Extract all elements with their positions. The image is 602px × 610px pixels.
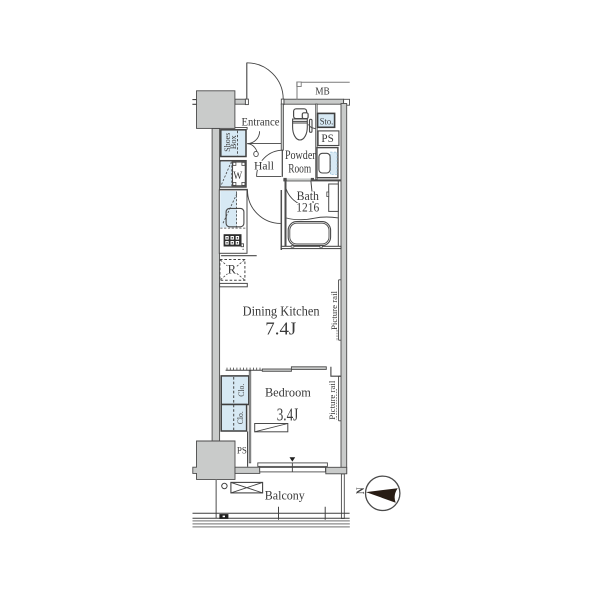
svg-text:Balcony: Balcony [265,489,306,503]
svg-text:Dining Kitchen: Dining Kitchen [243,304,320,319]
svg-text:3.4J: 3.4J [277,404,299,424]
svg-text:Clo.: Clo. [235,411,245,424]
svg-text:Box: Box [229,135,238,149]
svg-text:N: N [355,487,367,494]
svg-text:MB: MB [315,87,330,98]
svg-text:Entrance: Entrance [242,115,280,129]
svg-text:R: R [228,263,237,277]
svg-text:Room: Room [288,161,311,175]
svg-text:7.4J: 7.4J [265,319,296,339]
svg-text:Powder: Powder [285,148,316,162]
svg-text:W: W [233,168,243,182]
svg-text:Picture rail: Picture rail [330,290,339,330]
svg-text:1216: 1216 [296,201,319,215]
svg-text:Clo.: Clo. [236,384,246,397]
svg-text:PS: PS [321,133,333,145]
svg-text:PS: PS [237,446,247,456]
svg-text:Hall: Hall [254,158,275,172]
svg-text:Picture rail: Picture rail [328,380,337,420]
svg-text:Bedroom: Bedroom [265,385,311,400]
svg-text:Sto.: Sto. [320,117,334,127]
